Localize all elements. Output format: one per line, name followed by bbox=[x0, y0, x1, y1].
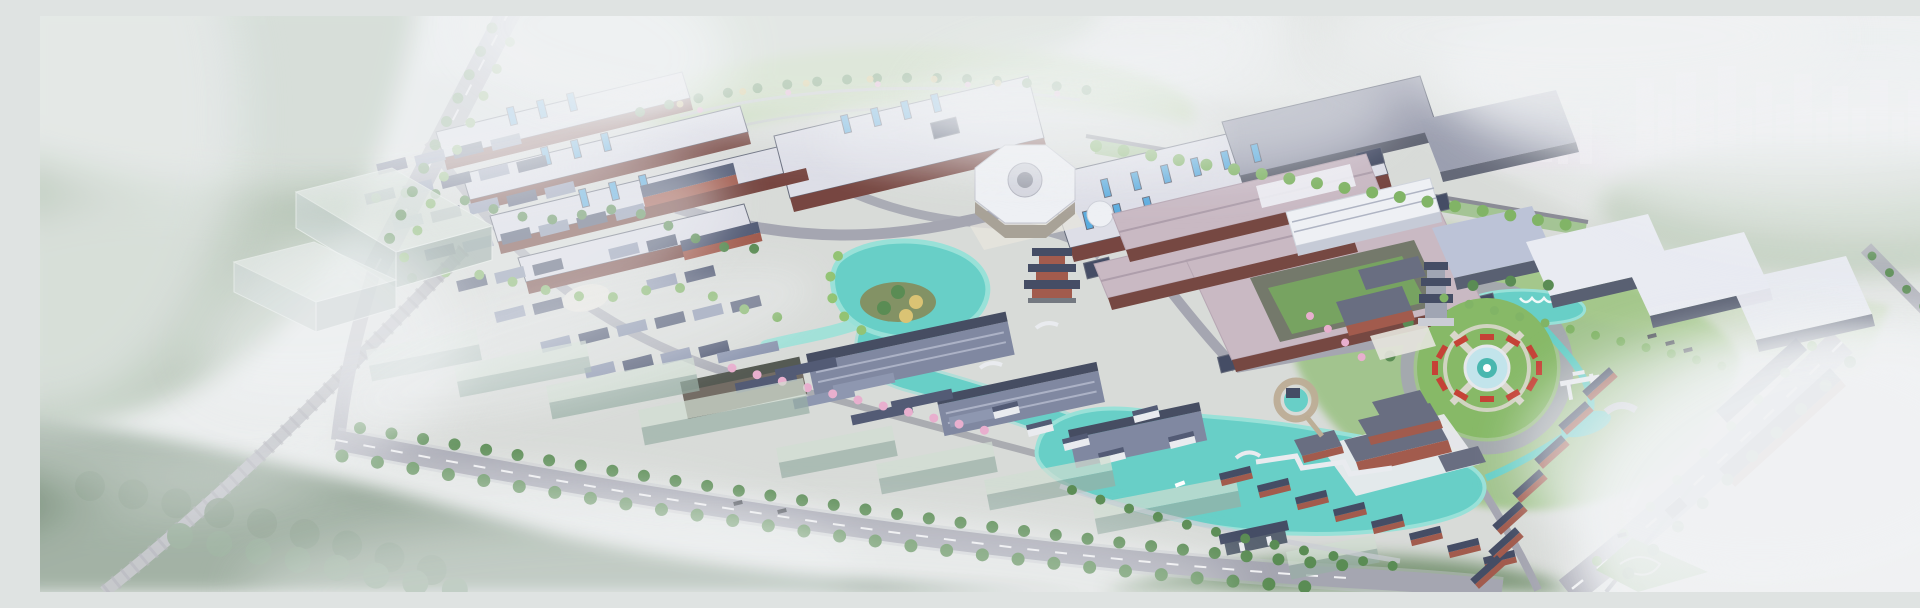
global-haze bbox=[40, 16, 1920, 592]
aerial-masterplan-rendering bbox=[40, 16, 1920, 592]
fog-layer bbox=[40, 16, 1920, 592]
scene bbox=[40, 16, 1920, 592]
